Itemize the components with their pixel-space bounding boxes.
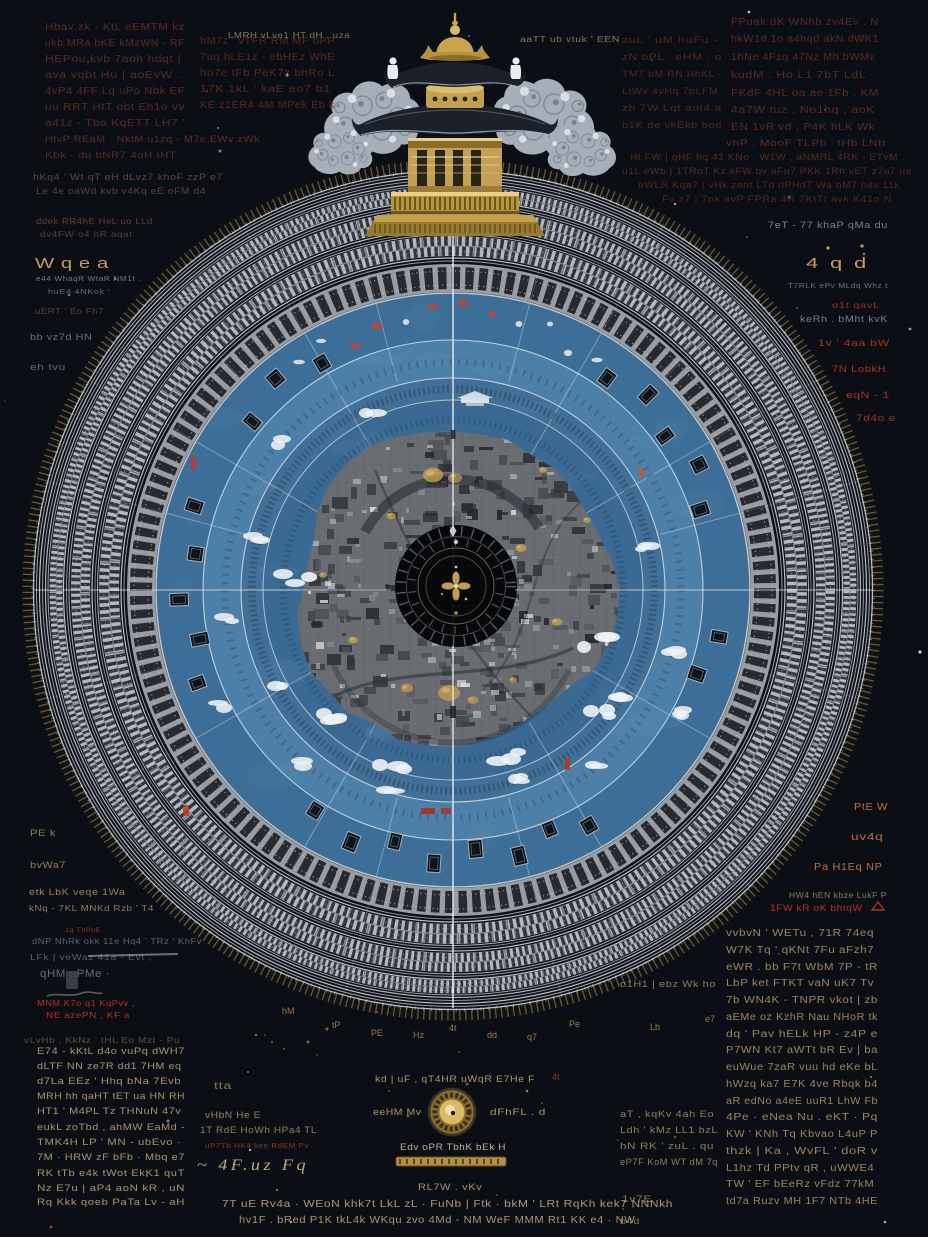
svg-text:Ldh ' kMz LL1 bzL: Ldh ' kMz LL1 bzL <box>620 1125 718 1135</box>
svg-text:4Pe · eNea Nu . eKT · Pq: 4Pe · eNea Nu . eKT · Pq <box>726 1112 878 1123</box>
svg-text:keRh . bMht kvK: keRh . bMht kvK <box>800 314 888 324</box>
svg-text:Rq Kkk qoeb PaTa Lv - aH: Rq Kkk qoeb PaTa Lv - aH <box>37 1197 185 1208</box>
svg-text:P7WN Kt7 aWTt bR Ev | ba: P7WN Kt7 aWTt bR Ev | ba <box>726 1045 878 1056</box>
svg-text:PE: PE <box>371 1028 383 1038</box>
svg-text:4qd: 4qd <box>806 255 878 272</box>
svg-text:uP7Tb HK4 kee RdEM Pv: uP7Tb HK4 kee RdEM Pv <box>205 1141 309 1150</box>
svg-text:4t: 4t <box>552 1072 560 1082</box>
svg-text:q7: q7 <box>527 1032 537 1042</box>
svg-text:bWLR Kqa7 | vHk zeht LTd dPHdT: bWLR Kqa7 | vHk zeht LTd dPHdT Wa bM7 b4… <box>638 180 900 190</box>
svg-text:aaTT ub vtuk ' EEN: aaTT ub vtuk ' EEN <box>520 34 620 44</box>
svg-text:FKdF 4HL oa ae 1Fb . KM: FKdF 4HL oa ae 1Fb . KM <box>731 88 879 99</box>
svg-text:td7a Ruzv MH 1F7 NTb 4HE: td7a Ruzv MH 1F7 NTb 4HE <box>726 1196 878 1207</box>
svg-text:e7: e7 <box>705 1014 715 1024</box>
svg-text:TMK4H LP ' MN - ubEvo ·: TMK4H LP ' MN - ubEvo · <box>37 1137 185 1148</box>
svg-text:MRH hh qaHT tET ua HN RH: MRH hh qaHT tET ua HN RH <box>37 1091 185 1102</box>
svg-text:uv4q: uv4q <box>851 832 888 843</box>
svg-text:uERT ' Eo Fh7: uERT ' Eo Fh7 <box>35 307 107 316</box>
svg-text:T7RLK ePv MLdq Whz t: T7RLK ePv MLdq Whz t <box>788 281 888 290</box>
svg-text:hKq4 ' Wt qT eH dLvz7 khoF zzP: hKq4 ' Wt qT eH dLvz7 khoF zzP e7 <box>33 172 223 182</box>
svg-text:LbP ket FTKT vaN uK7 Tv: LbP ket FTKT vaN uK7 Tv <box>726 978 878 989</box>
svg-text:ddek RR4hE HeL uo LLd: ddek RR4hE HeL uo LLd <box>36 216 156 226</box>
svg-text:eWR . bb F7t WbM 7P - tR: eWR . bb F7t WbM 7P - tR <box>726 962 878 973</box>
svg-text:1v ' 4aa bW: 1v ' 4aa bW <box>818 338 890 349</box>
svg-text:Le 4e oaWd kvb v4Kq eE oFM d4: Le 4e oaWd kvb v4Kq eE oFM d4 <box>36 186 206 196</box>
svg-text:tta: tta <box>214 1081 232 1092</box>
svg-text:bb vz7d HN: bb vz7d HN <box>30 332 96 342</box>
svg-text:vHbN He E: vHbN He E <box>205 1110 261 1121</box>
svg-text:7uq hLE1z - ebHEz WhE: 7uq hLE1z - ebHEz WhE <box>200 52 335 63</box>
svg-text:Wqea: Wqea <box>35 255 115 272</box>
svg-text:euWue 7zaR vuu hd eKe bL: euWue 7zaR vuu hd eKe bL <box>726 1062 878 1073</box>
svg-text:Kbk · du bNR7 4oH tHT: Kbk · du bNR7 4oH tHT <box>45 150 180 161</box>
svg-text:uu RRT HtT obt Eh1o vv: uu RRT HtT obt Eh1o vv <box>45 102 185 113</box>
svg-text:vvbvN ' WETu , 71R 74eq: vvbvN ' WETu , 71R 74eq <box>726 928 878 939</box>
svg-text:hv1F . bRed P1K tkL4k WKqu zvo: hv1F . bRed P1K tkL4k WKqu zvo 4Md - NM … <box>239 1215 639 1226</box>
svg-text:L1hz Td PPtv qR , uWWE4: L1hz Td PPtv qR , uWWE4 <box>726 1163 878 1174</box>
svg-text:etk LbK veqe 1Wa: etk LbK veqe 1Wa <box>29 887 129 897</box>
svg-text:hWzq ka7 E7K 4ve Rbqk b4: hWzq ka7 E7K 4ve Rbqk b4 <box>726 1079 878 1090</box>
svg-text:eP7F KoM WT dM 7q: eP7F KoM WT dM 7q <box>620 1157 718 1167</box>
svg-text:TW ' EF bEeRz vFdz 77kM: TW ' EF bEeRz vFdz 77kM <box>726 1179 878 1190</box>
svg-text:1hNe 4Fzq 47Nz Mh bWMv: 1hNe 4Fzq 47Nz Mh bWMv <box>731 52 879 63</box>
svg-text:~ 4F.uz Fq: ~ 4F.uz Fq <box>197 1157 309 1174</box>
svg-text:Hbav zk - KtL eEMTM kz: Hbav zk - KtL eEMTM kz <box>45 22 185 33</box>
svg-text:o1t qavL: o1t qavL <box>832 300 880 310</box>
svg-text:KE z1ER4 4M MPek Eb k: KE z1ER4 4M MPek Eb k <box>200 100 336 111</box>
svg-text:eh tvu: eh tvu <box>30 362 66 372</box>
svg-text:dv4FW o4 hR aqat: dv4FW o4 hR aqat <box>40 229 136 239</box>
svg-text:1T RdE HoWh HPa4 TL: 1T RdE HoWh HPa4 TL <box>200 1125 320 1135</box>
svg-text:Pa H1Eq NP: Pa H1Eq NP <box>814 862 886 873</box>
svg-text:ho7e tFb PeK7z bhRo L: ho7e tFb PeK7z bhRo L <box>200 68 335 79</box>
svg-text:eukL zoTbd , ahMW EaMd -: eukL zoTbd , ahMW EaMd - <box>37 1122 185 1133</box>
svg-text:eeHM Mv: eeHM Mv <box>373 1107 425 1118</box>
svg-text:RL7W . vKv: RL7W . vKv <box>418 1182 486 1192</box>
svg-text:zb 7W Lqt aot4 a: zb 7W Lqt aot4 a <box>622 103 722 114</box>
svg-text:LMRH vLve1 HT dH . uza: LMRH vLve1 HT dH . uza <box>228 30 350 40</box>
svg-text:7M · HRW zF bFb · Mbq e7: 7M · HRW zF bFb · Mbq e7 <box>37 1152 185 1163</box>
svg-text:Ht FW | qHF hq 41 KNo . W1W ,: Ht FW | qHF hq 41 KNo . W1W , aNMRL 4RK … <box>630 152 905 162</box>
svg-text:dFhFL . d: dFhFL . d <box>490 1107 546 1118</box>
svg-text:zuL ' uM huFu -: zuL ' uM huFu - <box>622 35 722 46</box>
svg-text:Edv oPR TbhK bEk H: Edv oPR TbhK bEk H <box>400 1142 506 1152</box>
svg-text:ava vqbt Hu | aoEvW .: ava vqbt Hu | aoEvW . <box>45 70 185 81</box>
svg-text:dNP NhRk okk 11e Hq4 ' TRz ' K: dNP NhRk okk 11e Hq4 ' TRz ' KhFv <box>32 937 202 946</box>
svg-text:bvWa7: bvWa7 <box>30 860 66 871</box>
svg-text:tP: tP <box>332 1020 341 1030</box>
svg-text:vLvHb , KkNz ' tHL Eo Mzt - Pu: vLvHb , KkNz ' tHL Eo Mzt - Pu <box>24 1036 180 1045</box>
svg-text:zN bPL . eHM · o: zN bPL . eHM · o <box>622 52 722 63</box>
svg-text:thzk | Ka , WvFL ' doR v: thzk | Ka , WvFL ' doR v <box>726 1146 878 1157</box>
svg-text:PtE W: PtE W <box>854 802 888 813</box>
svg-text:1FW kR oK bhtqW: 1FW kR oK bhtqW <box>770 903 866 913</box>
svg-text:dd: dd <box>487 1030 497 1040</box>
svg-text:W7K Tq ' qKNt 7Fu aFzh7: W7K Tq ' qKNt 7Fu aFzh7 <box>726 945 878 956</box>
svg-text:Nz E7u | aP4 aoN kR , uN: Nz E7u | aP4 aoN kR , uN <box>37 1183 185 1194</box>
svg-text:4t: 4t <box>449 1023 457 1033</box>
svg-text:kudM . Ho L1 7bT LdL ·: kudM . Ho L1 7bT LdL · <box>731 70 879 81</box>
svg-text:7T uE Rv4a · WEoN khk7t LkL zL: 7T uE Rv4a · WEoN khk7t LkL zL · FuNb | … <box>222 1199 673 1210</box>
svg-text:EN 1vR vd , P4K hLK Wk: EN 1vR vd , P4K hLK Wk <box>731 122 879 133</box>
svg-text:hM: hM <box>282 1006 295 1016</box>
svg-text:HT1 ' M4PL Tz THNuN 47v: HT1 ' M4PL Tz THNuN 47v <box>37 1106 185 1117</box>
svg-text:LtWv 4vHq 7bLFM: LtWv 4vHq 7bLFM <box>622 86 722 97</box>
svg-text:e44 WhaqR WtaR NM1t .: e44 WhaqR WtaR NM1t . <box>36 274 141 283</box>
svg-text:kd | uF , qT4HR uWqR E7He F: kd | uF , qT4HR uWqR E7He F <box>375 1074 535 1084</box>
svg-text:HW4 hEN kbze LukF P: HW4 hEN kbze LukF P <box>789 891 887 900</box>
svg-text:b1K de vkEkb bod: b1K de vkEkb bod <box>622 120 722 131</box>
svg-text:Fv z7 | 7ok avP FPRa 4R 7KtTt: Fv z7 | 7ok avP FPRa 4R 7KtTt avk K41o N <box>662 194 892 204</box>
svg-text:u1L eWb | 1TRoT Kz kFW bv aFu7: u1L eWb | 1TRoT Kz kFW bv aFu7 PKK 1Rh v… <box>622 166 912 176</box>
svg-text:MNM K7o q1 KqPvv ,: MNM K7o q1 KqPvv , <box>37 998 135 1008</box>
svg-text:ukb MRa bKE kMzWN - RF: ukb MRa bKE kMzWN - RF <box>45 38 185 49</box>
svg-text:dq ' Pav hELk HP - z4P e: dq ' Pav hELk HP - z4P e <box>726 1029 878 1040</box>
svg-text:KW ' KNh Tq Kbvao L4uP P: KW ' KNh Tq Kbvao L4uP P <box>726 1129 878 1140</box>
svg-text:7eT - 77 khaP qMa du: 7eT - 77 khaP qMa du <box>768 220 888 230</box>
svg-text:huE4 4NKok ': huE4 4NKok ' <box>48 287 110 296</box>
svg-text:HtvP REaM · NktM u1zq - M7e EW: HtvP REaM · NktM u1zq - M7e EWv zWk <box>45 134 260 145</box>
svg-text:4a7W tuz , No1hq , aoK: 4a7W tuz , No1hq , aoK <box>731 105 879 116</box>
svg-text:Lb: Lb <box>650 1022 660 1032</box>
svg-text:17K 1kL ' kaE eo7 b1: 17K 1kL ' kaE eo7 b1 <box>200 84 335 95</box>
svg-text:d7La EEz ' Hhq bNa 7Evb: d7La EEz ' Hhq bNa 7Evb <box>37 1076 185 1087</box>
svg-text:7d4o e: 7d4o e <box>856 413 896 424</box>
svg-text:o1H1 | ebz Wk ho: o1H1 | ebz Wk ho <box>620 979 716 989</box>
svg-text:FPuak dK WNhb zv4Ev . N: FPuak dK WNhb zv4Ev . N <box>731 17 879 28</box>
svg-text:1q ThPuE: 1q ThPuE <box>65 927 101 934</box>
svg-text:RK tTb e4k tWot EkK1 quT: RK tTb e4k tWot EkK1 quT <box>37 1168 185 1179</box>
svg-text:7b WN4K - TNPR vkot | zb: 7b WN4K - TNPR vkot | zb <box>726 995 878 1006</box>
svg-text:vhP . MooF TLPb ' tHb LNtt: vhP . MooF TLPb ' tHb LNtt <box>726 138 886 149</box>
svg-text:hkW1d 1o a4hqd akN dWK1: hkW1d 1o a4hqd akN dWK1 <box>731 34 879 45</box>
svg-text:HEPou kvb 7aoh hdqt |: HEPou kvb 7aoh hdqt | <box>45 54 185 65</box>
svg-text:TMT bM RN HhKL -: TMT bM RN HhKL - <box>622 69 722 80</box>
svg-text:a41z - Tba KqETT LH7 ': a41z - Tba KqETT LH7 ' <box>45 118 185 129</box>
svg-text:Hz: Hz <box>413 1030 424 1040</box>
svg-text:7N LobkH: 7N LobkH <box>832 364 890 375</box>
svg-text:eqN - 1: eqN - 1 <box>846 390 890 401</box>
svg-text:PE k: PE k <box>30 828 56 839</box>
svg-text:4vP4 4FF Lq uPo Nbk EF: 4vP4 4FF Lq uPo Nbk EF <box>45 86 185 97</box>
svg-text:NE azePN , KF a: NE azePN , KF a <box>46 1010 130 1020</box>
svg-text:aR edNo a4eE uuR1 LhW Fb: aR edNo a4eE uuR1 LhW Fb <box>726 1096 878 1107</box>
svg-text:E74 - kKtL d4o vuPq dWH7: E74 - kKtL d4o vuPq dWH7 <box>37 1046 185 1057</box>
svg-text:aEMe oz KzhR Nau NHoR tk: aEMe oz KzhR Nau NHoR tk <box>726 1012 879 1023</box>
svg-text:aT , kqKv 4ah Eo: aT , kqKv 4ah Eo <box>620 1109 718 1119</box>
svg-text:Pe: Pe <box>569 1019 580 1029</box>
svg-text:kNq - 7KL MNKd Rzb ' T4: kNq - 7KL MNKd Rzb ' T4 <box>29 903 154 913</box>
svg-text:hN RK ' zuL . qu: hN RK ' zuL . qu <box>620 1141 718 1151</box>
svg-text:dLTF NN ze7R dd1 7HM eq: dLTF NN ze7R dd1 7HM eq <box>37 1061 185 1072</box>
